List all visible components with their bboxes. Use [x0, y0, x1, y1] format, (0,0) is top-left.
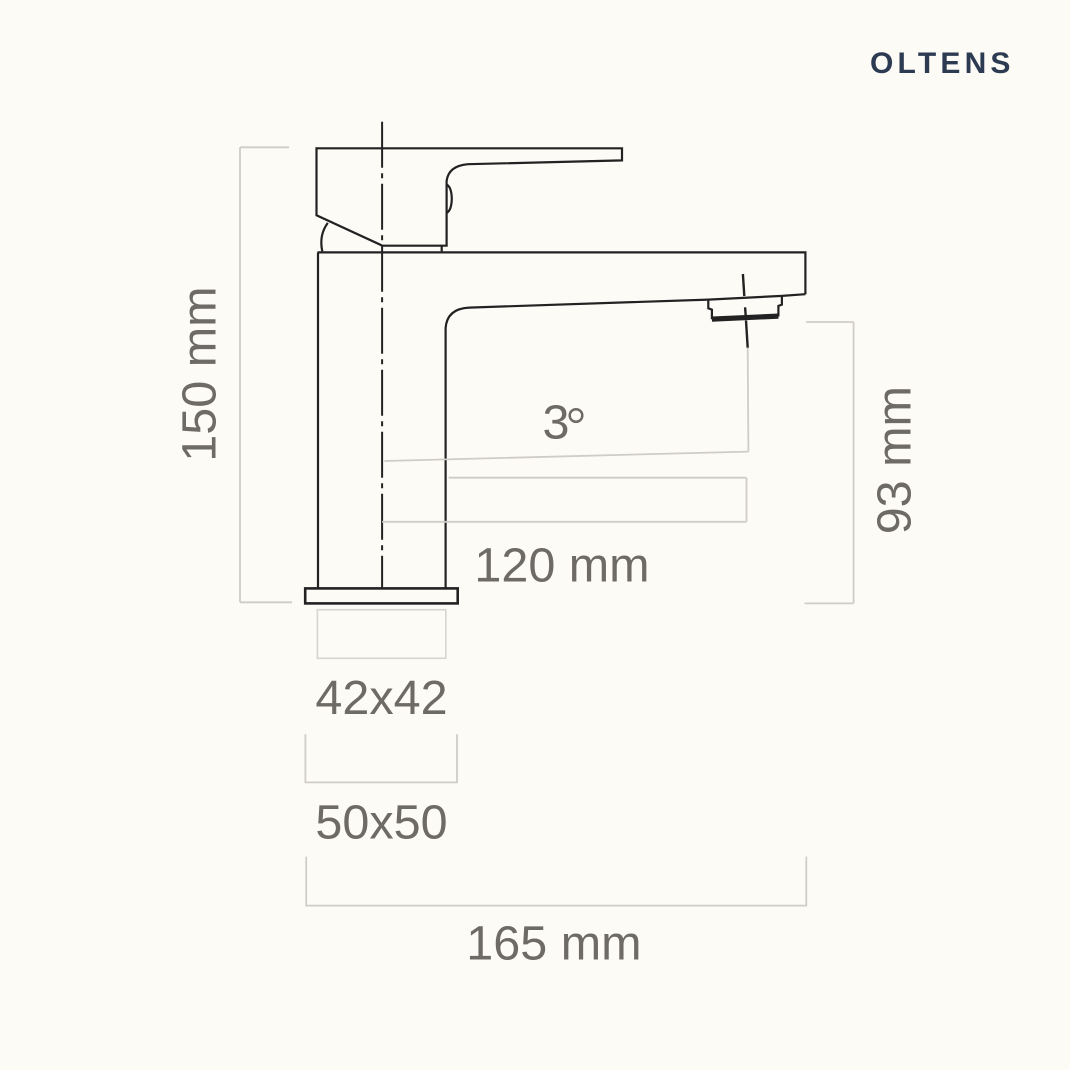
- svg-text:120 mm: 120 mm: [474, 538, 649, 592]
- svg-text:OLTENS: OLTENS: [870, 47, 1015, 80]
- svg-text:50x50: 50x50: [315, 796, 447, 850]
- svg-text:3: 3: [543, 396, 570, 450]
- svg-text:150 mm: 150 mm: [173, 286, 227, 461]
- svg-text:42x42: 42x42: [315, 671, 447, 725]
- svg-text:93 mm: 93 mm: [868, 386, 922, 534]
- svg-text:165 mm: 165 mm: [466, 916, 641, 970]
